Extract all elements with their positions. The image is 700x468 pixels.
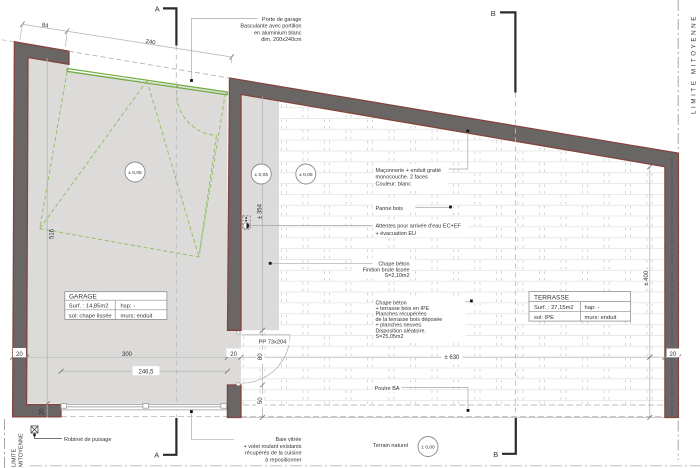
svg-text:hsp: -: hsp: -: [121, 304, 136, 310]
svg-text:murs: enduit: murs: enduit: [121, 313, 153, 319]
svg-text:± 630: ± 630: [444, 355, 460, 361]
svg-text:516: 516: [50, 228, 56, 239]
svg-text:240: 240: [145, 39, 156, 47]
svg-text:murs: enduit: murs: enduit: [585, 315, 617, 321]
svg-text:LIMITE: LIMITE: [12, 448, 18, 467]
svg-text:sol: chape lissée: sol: chape lissée: [69, 313, 112, 319]
svg-text:20: 20: [670, 352, 677, 358]
svg-text:20: 20: [40, 408, 46, 415]
svg-text:S=25,05m2: S=25,05m2: [376, 334, 404, 340]
svg-text:50: 50: [258, 397, 264, 404]
svg-text:Porte de garage: Porte de garage: [262, 17, 301, 23]
svg-text:LIMITE MITOYENNE: LIMITE MITOYENNE: [691, 14, 698, 114]
svg-text:20: 20: [230, 352, 237, 358]
svg-text:A: A: [155, 4, 160, 13]
svg-text:monocouche. 2 faces: monocouche. 2 faces: [376, 175, 429, 181]
svg-text:± 400: ± 400: [644, 270, 650, 286]
svg-text:à repositionner: à repositionner: [265, 457, 302, 463]
svg-text:± 354: ± 354: [258, 203, 264, 219]
svg-text:GARAGE: GARAGE: [69, 293, 97, 300]
svg-text:en aluminium blanc: en aluminium blanc: [254, 30, 302, 36]
svg-text:hap: -: hap: -: [585, 305, 600, 311]
svg-text:Baie vitrée: Baie vitrée: [276, 437, 302, 443]
svg-text:S=2,10m2: S=2,10m2: [385, 273, 410, 279]
svg-text:dim. 200x240cm: dim. 200x240cm: [261, 37, 302, 43]
svg-text:Poutre BA: Poutre BA: [375, 386, 400, 392]
svg-text:Couleur: blanc: Couleur: blanc: [376, 182, 412, 188]
svg-text:80: 80: [258, 353, 264, 360]
svg-text:récupérés de la cuisine: récupérés de la cuisine: [245, 451, 302, 457]
svg-text:Basculante avec portillon: Basculante avec portillon: [240, 24, 301, 30]
svg-text:A: A: [154, 451, 159, 460]
svg-text:Maçonnerie + enduit gratté: Maçonnerie + enduit gratté: [376, 168, 442, 174]
svg-text:MITOYENNE: MITOYENNE: [19, 433, 25, 467]
svg-text:Surf. : 27,15m2: Surf. : 27,15m2: [534, 305, 574, 311]
svg-text:B: B: [493, 450, 498, 459]
svg-text:TERRASSE: TERRASSE: [534, 294, 570, 301]
svg-text:± 0,05: ± 0,05: [128, 170, 142, 176]
svg-text:± 0,05: ± 0,05: [255, 172, 269, 178]
svg-text:Surf. : 14,85m2: Surf. : 14,85m2: [69, 304, 109, 310]
svg-text:+ évacuation EU: + évacuation EU: [376, 231, 417, 237]
svg-text:84: 84: [41, 23, 49, 30]
svg-text:Panne bois: Panne bois: [376, 206, 404, 212]
svg-text:B: B: [491, 9, 496, 18]
svg-text:Terrain naturel: Terrain naturel: [373, 443, 408, 449]
svg-text:246,5: 246,5: [138, 369, 154, 375]
svg-text:Robinet de puisage: Robinet de puisage: [64, 437, 111, 443]
svg-text:20: 20: [16, 352, 23, 358]
svg-text:PP 73x204: PP 73x204: [259, 339, 287, 345]
svg-text:± 0,05: ± 0,05: [299, 172, 313, 178]
svg-text:+ volet roulant existants: + volet roulant existants: [244, 444, 302, 450]
svg-text:sol: IPE: sol: IPE: [534, 315, 554, 321]
svg-text:Attentes pour arrivée d'eau EC: Attentes pour arrivée d'eau EC+EF: [376, 223, 462, 229]
svg-text:300: 300: [122, 352, 133, 358]
svg-text:± 0,00: ± 0,00: [421, 445, 435, 451]
